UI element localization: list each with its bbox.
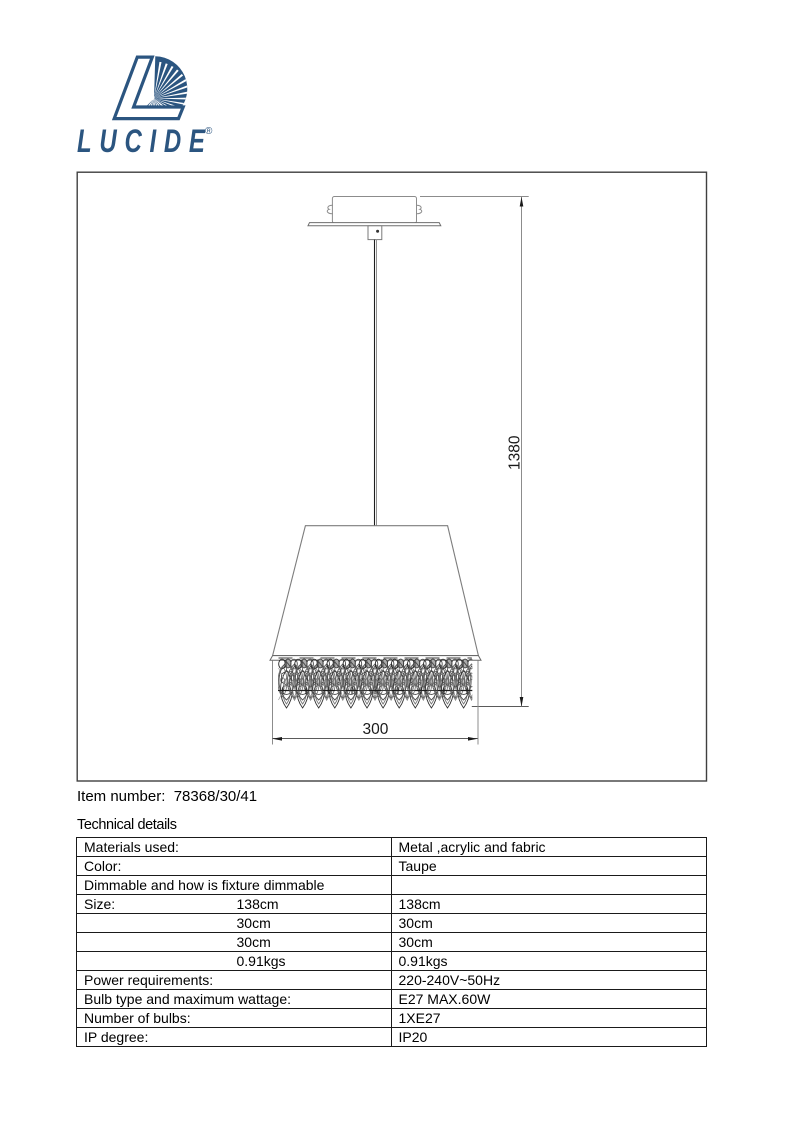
svg-text:300: 300 (363, 721, 389, 738)
svg-text:1380: 1380 (507, 435, 524, 470)
